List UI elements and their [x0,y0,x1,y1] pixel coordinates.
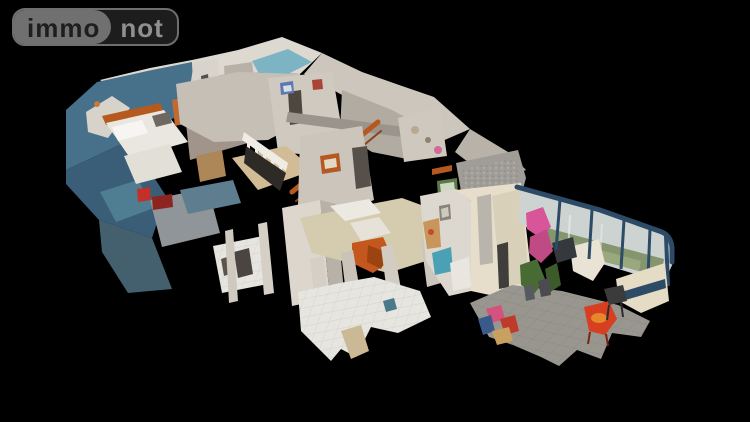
picture-inner [283,85,292,92]
bedside-lamp [94,101,100,107]
red-chair-seat [591,313,607,323]
viewer-stage: immo not [0,0,750,422]
picture-frame-red [312,79,323,90]
shelf-clutter [425,137,431,143]
mirror-dark [497,242,509,289]
logo-not-segment: not [111,10,176,44]
red-sign [137,187,151,202]
immonot-logo[interactable]: immo not [12,8,179,46]
shelf-clutter [411,126,419,134]
washing-machine [450,257,471,291]
pink-toy [434,146,442,154]
kitchen-counter [180,180,241,214]
logo-immo-segment: immo [14,10,111,44]
toy-dot [428,229,434,235]
dollhouse-3d-view[interactable] [0,0,750,422]
orange-trim [432,165,452,175]
